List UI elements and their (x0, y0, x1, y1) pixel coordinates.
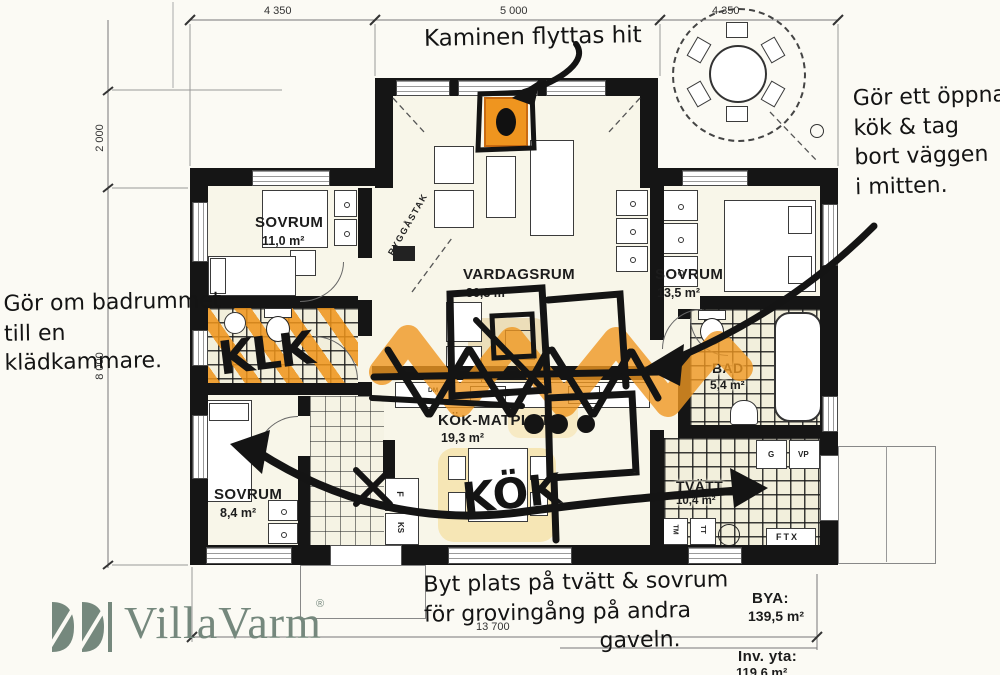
bathtub (774, 312, 822, 422)
sofa (530, 140, 574, 236)
window (682, 170, 748, 186)
wall (678, 354, 690, 438)
coffee-table (486, 156, 516, 218)
note-line: till en (4, 316, 222, 349)
room-area-kok-matplats: 19,3 m² (441, 431, 484, 445)
dim-top-right: 4 350 (712, 5, 740, 17)
pillow (788, 256, 812, 284)
window (192, 415, 208, 479)
villavarm-logo-text: VillaVarm (124, 596, 322, 649)
wall (650, 186, 664, 340)
armchair (446, 302, 482, 342)
tvatt-door-opening (820, 455, 840, 521)
wall (298, 396, 310, 416)
wardrobe (268, 523, 298, 544)
sink (730, 400, 758, 425)
patio-chair (726, 106, 748, 122)
note-line: kök & tag (853, 109, 1000, 143)
kitchen-stove (568, 386, 600, 404)
floor-drain (718, 524, 740, 546)
note-line: klädkammare. (4, 345, 222, 378)
wall (690, 425, 838, 438)
inv-yta-value: 119,6 m² (736, 665, 787, 675)
dim-left-upper: 2 000 (94, 124, 106, 152)
tm-label: TM (672, 524, 679, 534)
wardrobe (334, 190, 357, 217)
freezer-label: KS (396, 522, 405, 533)
kitchen-counter (395, 382, 650, 408)
note-bathroom: Gör om badrummet till en klädkammare. (3, 286, 222, 379)
dim-top-center: 5 000 (500, 5, 528, 17)
room-area-tvatt: 10,4 m² (676, 495, 716, 507)
room-area-sovrum-right: 13,5 m² (657, 286, 700, 300)
note-line: gaveln. (599, 625, 729, 657)
window (688, 547, 742, 564)
room-label-tvatt: TVÄTT (676, 478, 723, 494)
note-line: Byt plats på tvätt & sovrum (423, 565, 728, 600)
note-line: för grovingång på andra (424, 595, 729, 630)
bya-label: BYA: (752, 590, 789, 607)
window (458, 80, 538, 96)
room-label-vardagsrum: VARDAGSRUM (463, 266, 575, 283)
window (448, 547, 572, 564)
wardrobe (334, 219, 357, 246)
fireplace-opening (496, 108, 516, 136)
kitchen-sink (470, 386, 506, 404)
room-label-sovrum-bottomleft: SOVRUM (214, 486, 282, 503)
fridge-label: F (395, 491, 405, 497)
window (546, 80, 606, 96)
window (192, 202, 208, 262)
pillow (788, 206, 812, 234)
room-label-sovrum-right: SOVRUM (655, 266, 723, 283)
armchair (434, 146, 474, 184)
note-line: i mitten. (855, 169, 1000, 203)
floor-plan-document: SOVRUM 11,0 m² VARDAGSRUM 30,3 m² RYGGÅS… (0, 0, 1000, 675)
note-line: bort väggen (854, 139, 1000, 173)
g-label: G (768, 450, 774, 459)
bya-value: 139,5 m² (748, 608, 804, 624)
section-marker-icon (810, 124, 824, 138)
wall (383, 440, 395, 478)
villavarm-logo: VillaVarm ® (48, 596, 348, 658)
registered-mark: ® (316, 598, 324, 610)
room-area-sovrum-bottomleft: 8,4 m² (220, 506, 256, 520)
note-line: Gör ett öppnare (852, 80, 1000, 114)
wall (358, 300, 372, 336)
note-open-kitchen: Gör ett öppnare kök & tag bort väggen i … (852, 80, 1000, 203)
wall-to-remove (372, 366, 650, 380)
old-fireplace-outline (505, 330, 535, 360)
note-line: Gör om badrummet (3, 286, 221, 319)
inv-yta-label: Inv. yta: (738, 648, 797, 665)
patio-chair (726, 22, 748, 38)
armchair (434, 190, 474, 228)
patio-table (709, 45, 767, 103)
kok-marker-text: KÖK (459, 461, 563, 528)
entry-door-opening (330, 545, 402, 567)
wall (700, 296, 838, 309)
room-label-sovrum-topleft: SOVRUM (255, 214, 323, 231)
window (252, 170, 330, 186)
wall (358, 188, 372, 258)
room-label-kok-matplats: KÖK-MATPLATS (438, 412, 561, 429)
window (822, 396, 838, 432)
room-area-sovrum-topleft: 11,0 m² (262, 234, 304, 248)
side-porch-step (886, 446, 887, 562)
note-kaminen: Kaminen flyttas hit (424, 20, 642, 55)
dm-label: DM (428, 387, 438, 394)
hall-floor-tiles (310, 396, 384, 546)
note-swap: Byt plats på tvätt & sovrum för grovingå… (423, 565, 729, 659)
wardrobe (662, 190, 698, 221)
wardrobe (662, 223, 698, 254)
vp-label: VP (798, 450, 809, 459)
wardrobe (616, 190, 648, 216)
window (206, 547, 292, 564)
tt-label: TT (699, 525, 706, 534)
dim-top-left: 4 350 (264, 5, 292, 17)
room-label-bad: BAD (712, 360, 744, 376)
pillow (209, 403, 249, 421)
wall (650, 430, 664, 545)
klk-marker-text: KLK (215, 316, 316, 389)
window (396, 80, 450, 96)
villavarm-leaf-icon (48, 598, 114, 656)
wardrobe (616, 246, 648, 272)
wardrobe (268, 500, 298, 521)
wall (298, 456, 310, 545)
wall (204, 296, 358, 308)
ftx-label: FTX (776, 532, 799, 542)
window (822, 204, 838, 266)
wardrobe (616, 218, 648, 244)
room-area-vardagsrum: 30,3 m² (466, 286, 509, 300)
side-porch (838, 446, 936, 564)
room-area-bad: 5,4 m² (710, 378, 745, 392)
